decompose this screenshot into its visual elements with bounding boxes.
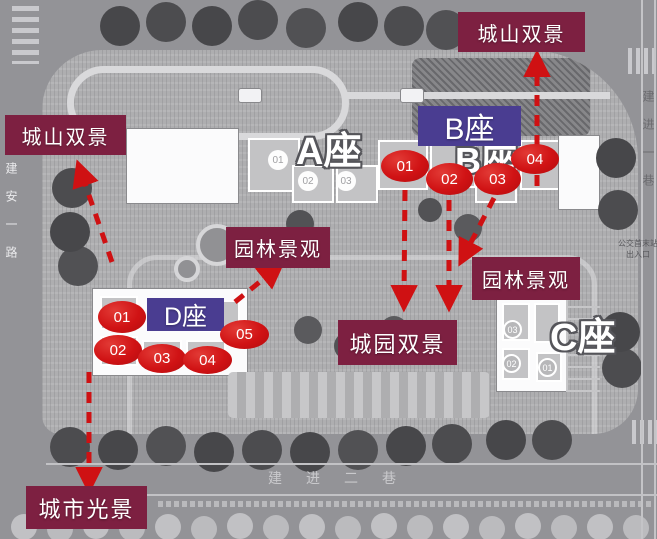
unit-circle-c03: 03 [503, 320, 522, 339]
bus-station-label: 公交首末站 出入口 [616, 238, 657, 260]
unit-circle-a02: 02 [298, 171, 318, 191]
plaza-stripes [228, 372, 490, 418]
marker-b-03: 03 [474, 163, 521, 195]
site-plan-annotated-map: 建安一路 建进一巷 建进二巷 公交首末站 出入口 A座 B座 C座 01 02 … [0, 0, 657, 539]
callout-garden-center: 园林景观 [226, 227, 330, 268]
building-c-title: C座 [550, 306, 615, 361]
bus-station-line2: 出入口 [616, 249, 657, 260]
vehicle-shape [400, 88, 424, 103]
lane-line [654, 0, 656, 539]
callout-left: 城山双景 [5, 115, 126, 155]
building-east-block [558, 135, 600, 210]
road-label-south: 建进二巷 [268, 468, 420, 488]
crosswalk [12, 6, 39, 64]
building-b-badge: B座 [418, 106, 521, 146]
unit-circle-c01: 01 [538, 358, 557, 377]
callout-city-lights: 城市光景 [26, 486, 147, 529]
unit-circle-c02: 02 [502, 354, 521, 373]
lane-line [641, 0, 643, 539]
marker-d-01: 01 [98, 301, 146, 333]
unit-circle-a03: 03 [336, 171, 356, 191]
building-west-tower [126, 128, 239, 204]
callout-top-right: 城山双景 [458, 12, 585, 52]
marker-b-02: 02 [426, 163, 473, 195]
unit-circle-a01: 01 [268, 150, 288, 170]
path-bar [342, 92, 610, 99]
marker-d-04: 04 [183, 346, 232, 374]
callout-city-garden: 城园双景 [338, 320, 457, 365]
building-a-title: A座 [296, 120, 361, 175]
pond-small [174, 256, 200, 282]
road-label-east: 建进一巷 [640, 90, 657, 202]
marker-b-04: 04 [511, 144, 559, 174]
callout-garden-right: 园林景观 [472, 257, 580, 300]
marker-d-02: 02 [94, 335, 142, 365]
road-label-west: 建安一路 [3, 162, 20, 274]
marker-d-05: 05 [220, 320, 269, 349]
vehicle-shape [238, 88, 262, 103]
marker-b-01: 01 [381, 150, 429, 182]
fine-print-line [158, 501, 652, 507]
building-d-badge: D座 [147, 298, 224, 331]
marker-d-03: 03 [138, 344, 186, 373]
bus-station-line1: 公交首末站 [616, 238, 657, 249]
lane-line [46, 463, 657, 465]
